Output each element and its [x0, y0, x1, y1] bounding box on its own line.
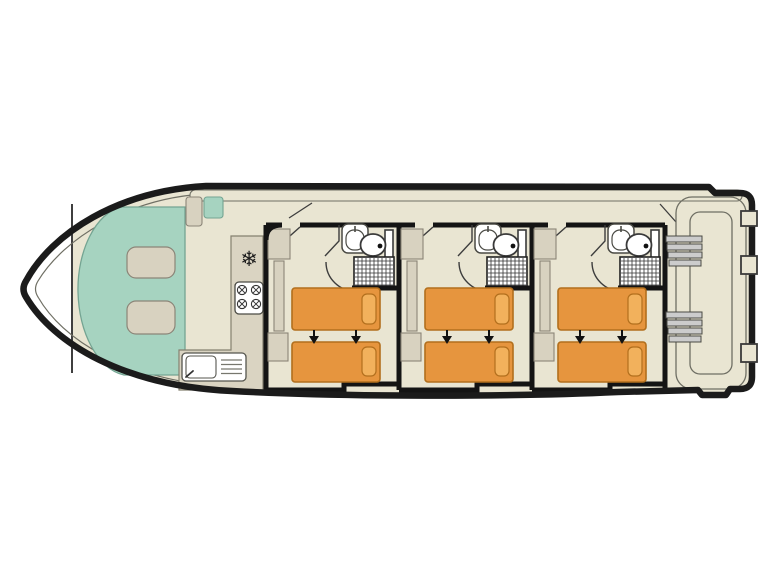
boat-plan-svg: ❄: [0, 0, 768, 576]
boarding-gate: [741, 256, 757, 274]
boarding-gate: [741, 344, 757, 362]
hob: [235, 282, 263, 314]
snowflake-icon: ❄: [240, 247, 258, 271]
corridor-roofline: [190, 190, 742, 201]
small-seat-cushion: [204, 197, 223, 218]
small-bench: [186, 197, 202, 226]
galley-sink: [182, 353, 246, 381]
bow-lounge-seating: [78, 207, 185, 375]
boarding-gate: [741, 211, 757, 226]
lounge-table: [127, 247, 175, 278]
boat-deck-plan: ❄: [0, 0, 768, 576]
lounge-table: [127, 301, 175, 334]
